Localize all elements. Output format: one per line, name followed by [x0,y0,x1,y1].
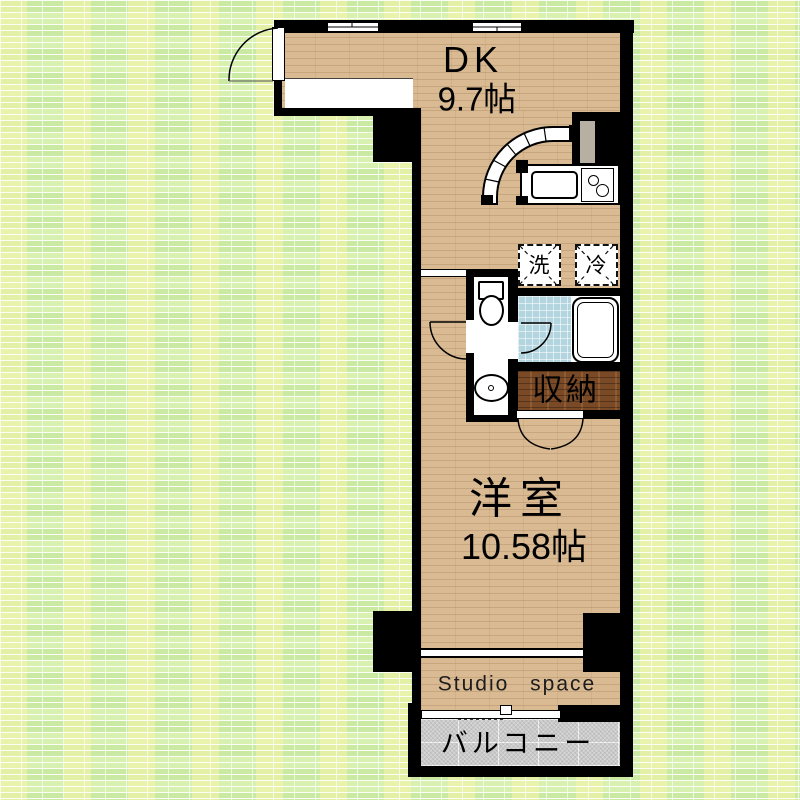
window-1 [327,22,379,32]
counter-cap-d [569,125,578,142]
room-label-dk: DK [443,42,503,78]
room-label-studio: Studio space [438,674,596,695]
fridge-label: 冷 [584,256,609,277]
entrance-genkan-floor [285,78,413,109]
sliding-window-handle [500,705,512,715]
entrance-door-arc [229,28,278,81]
room-label-balcony: バルコニー [441,731,595,758]
stove-burner-large [596,184,609,197]
bath-bottom-wall [508,362,633,371]
balcony-window-wall [558,705,633,722]
bathtub [572,297,619,363]
bath-top-wall [511,288,633,296]
window-2 [472,22,522,32]
entrance-door-leaf [272,27,285,81]
room-size-western: 10.58帖 [461,529,587,565]
counter-cap-b [516,196,528,205]
room-divider [421,648,583,658]
room-size-dk: 9.7帖 [438,83,517,116]
bathtub-inner [577,302,614,358]
room-label-storage: 収納 [532,375,600,406]
toilet-door-opening [466,320,474,353]
bath-tile-floor [518,296,571,363]
bath-door-opening [508,322,518,359]
balcony-left-wall [408,703,421,773]
floor-plan-canvas: DK 9.7帖 洋室 10.58帖 収納 洗 冷 Studio space バル… [0,0,800,800]
left-pillar [373,611,421,672]
counter-cap-c [481,195,493,205]
counter-cap-a [516,160,528,173]
storage-door-strip [517,410,583,419]
sliding-window [421,710,561,719]
right-pillar [583,613,633,672]
washer-label: 洗 [527,256,552,277]
washbasin-drain [488,385,494,391]
hall-opening [421,269,466,277]
room-label-western: 洋室 [469,479,571,522]
kitchen-sink [531,171,578,199]
stove-burner-small [588,175,599,186]
toilet-bowl [479,295,504,326]
kitchen-duct [580,121,595,163]
bottom-wall [408,766,633,777]
genkan-bottom-wall [274,108,378,116]
